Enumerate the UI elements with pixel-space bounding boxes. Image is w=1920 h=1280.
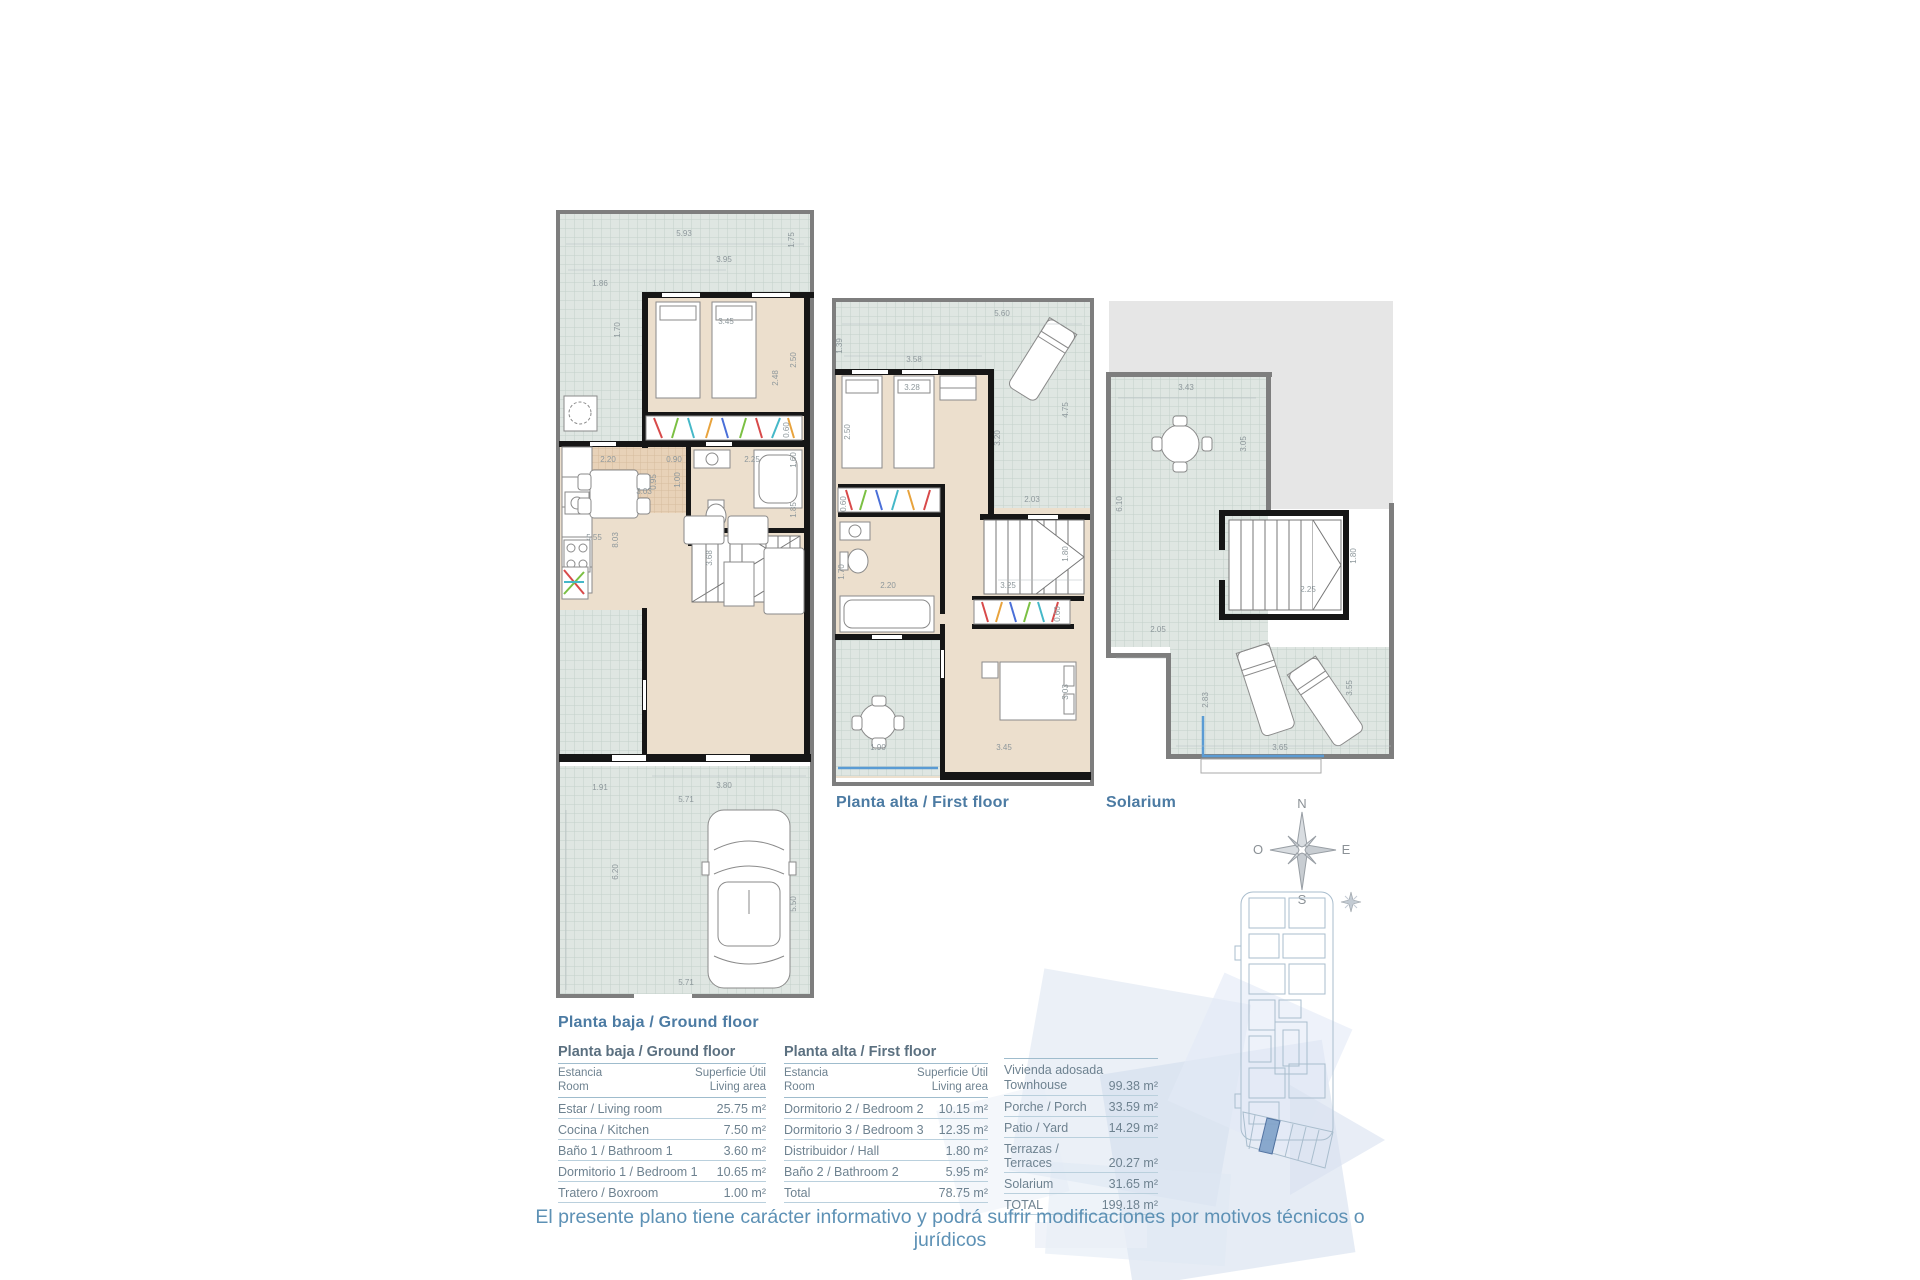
room-label: Distribuidor / Hall	[784, 1144, 879, 1158]
room-label: Terrazas / Terraces	[1004, 1142, 1109, 1170]
dim-label: 2.25	[1300, 585, 1316, 594]
area-value: 25.75 m²	[717, 1102, 766, 1116]
solarium-plan: 3.43 3.05 6.10 1.80 2.25 2.05 2.83 3.65 …	[1106, 298, 1396, 790]
dim-label: 3.58	[906, 355, 922, 364]
area-value: 99.38 m²	[1109, 1079, 1158, 1093]
first-floor-label: Planta alta / First floor	[836, 794, 1009, 812]
table-row: Cocina / Kitchen 7.50 m²	[558, 1119, 766, 1140]
room-label: Dormitorio 1 / Bedroom 1	[558, 1165, 698, 1179]
dim-label: 5.93	[676, 229, 692, 238]
dim-label: 1.80	[1061, 546, 1070, 562]
washer-icon	[564, 396, 597, 431]
room-label-line2: Townhouse	[1004, 1078, 1103, 1093]
compass-n: N	[1297, 796, 1306, 811]
table-row: Terrazas / Terraces 20.27 m²	[1004, 1138, 1158, 1173]
area-value: 1.00 m²	[724, 1186, 766, 1200]
table-totals: Vivienda adosada Townhouse 99.38 m² Porc…	[1004, 1058, 1158, 1215]
roof-area	[1268, 301, 1393, 509]
dim-label: 3.05	[1239, 436, 1248, 452]
area-value: 5.95 m²	[946, 1165, 988, 1179]
table-title: Planta baja / Ground floor	[558, 1044, 766, 1064]
table-row: Porche / Porch 33.59 m²	[1004, 1096, 1158, 1117]
table-row: Patio / Yard 14.29 m²	[1004, 1117, 1158, 1138]
dim-label: 3.45	[996, 743, 1012, 752]
table-row: Total 78.75 m²	[784, 1182, 988, 1203]
dim-label: 1.70	[613, 322, 622, 338]
table-header: Estancia Room Superficie Útil Living are…	[784, 1064, 988, 1098]
room-label: Porche / Porch	[1004, 1100, 1087, 1114]
room-label: Baño 2 / Bathroom 2	[784, 1165, 899, 1179]
room-label: Tratero / Boxroom	[558, 1186, 658, 1200]
room-label: Dormitorio 2 / Bedroom 2	[784, 1102, 924, 1116]
area-value: 78.75 m²	[939, 1186, 988, 1200]
dim-label: 2.25	[744, 455, 760, 464]
table-first-floor: Planta alta / First floor Estancia Room …	[784, 1044, 988, 1203]
dim-label: 2.50	[843, 424, 852, 440]
dim-label: 3.25	[1000, 581, 1016, 590]
dim-label: 1.85	[789, 502, 798, 518]
dim-label: 2.83	[1201, 692, 1210, 708]
area-value: 20.27 m²	[1109, 1156, 1158, 1170]
compass-o: O	[1253, 842, 1263, 857]
dim-label: 4.75	[1061, 402, 1070, 418]
table-row: Distribuidor / Hall 1.80 m²	[784, 1140, 988, 1161]
highlighted-unit	[1259, 1118, 1280, 1154]
ground-floor-label: Planta baja / Ground floor	[558, 1014, 759, 1032]
entrance-tiles	[559, 610, 646, 758]
header-area-line1: Superficie Útil	[695, 1067, 766, 1081]
dim-label: 3.28	[904, 383, 920, 392]
dim-label: 5.50	[789, 896, 798, 912]
dim-label: 3.80	[716, 781, 732, 790]
dim-label: 5.71	[678, 978, 694, 987]
dim-label: 1.39	[835, 338, 844, 354]
dim-label: 3.65	[1272, 743, 1288, 752]
header-room: Estancia Room	[784, 1067, 828, 1094]
area-value: 3.60 m²	[724, 1144, 766, 1158]
room-label: Baño 1 / Bathroom 1	[558, 1144, 673, 1158]
header-area-line1: Superficie Útil	[917, 1067, 988, 1081]
table-header: Estancia Room Superficie Útil Living are…	[558, 1064, 766, 1098]
header-room: Estancia Room	[558, 1067, 602, 1094]
dim-label: 1.91	[592, 783, 608, 792]
dim-label: 3.95	[716, 255, 732, 264]
dim-label: 5.71	[678, 795, 694, 804]
site-compass-icon	[1341, 892, 1361, 912]
dim-label: 3.20	[993, 430, 1002, 446]
room-label: Vivienda adosada Townhouse	[1004, 1063, 1103, 1093]
dim-label: 3.03	[1061, 684, 1070, 700]
table-title: Planta alta / First floor	[784, 1044, 988, 1064]
dim-label: 0.90	[666, 455, 682, 464]
header-room-line1: Estancia	[558, 1067, 602, 1081]
room-label: Solarium	[1004, 1177, 1053, 1191]
room-label: Estar / Living room	[558, 1102, 662, 1116]
table-row: Baño 2 / Bathroom 2 5.95 m²	[784, 1161, 988, 1182]
dim-label: 6.10	[1115, 496, 1124, 512]
header-area-line2: Living area	[917, 1081, 988, 1095]
header-room-line2: Room	[558, 1081, 602, 1095]
header-area: Superficie Útil Living area	[917, 1067, 988, 1094]
room-label: Total	[784, 1186, 810, 1200]
area-value: 10.15 m²	[939, 1102, 988, 1116]
table-row: Tratero / Boxroom 1.00 m²	[558, 1182, 766, 1203]
dim-label: 1.60	[789, 452, 798, 468]
dim-label: 3.68	[705, 550, 714, 566]
wardrobe-icon	[646, 416, 802, 440]
table-row: Estar / Living room 25.75 m²	[558, 1098, 766, 1119]
area-value: 10.65 m²	[717, 1165, 766, 1179]
area-value: 1.80 m²	[946, 1144, 988, 1158]
dim-label: 3.45	[718, 317, 734, 326]
header-area: Superficie Útil Living area	[695, 1067, 766, 1094]
dim-label: 1.75	[787, 232, 796, 248]
floorplan-sheet: 5.93 1.75 3.95 1.86 1.70 3.45 2.50 2.48 …	[0, 0, 1920, 1280]
table-row: Solarium 31.65 m²	[1004, 1173, 1158, 1194]
dim-label: 3.43	[1178, 383, 1194, 392]
site-plan	[1233, 886, 1373, 1186]
dim-label: 2.05	[1150, 625, 1166, 634]
dim-label: 8.03	[611, 532, 620, 548]
room-label-line1: Vivienda adosada	[1004, 1063, 1103, 1078]
ground-floor-plan: 5.93 1.75 3.95 1.86 1.70 3.45 2.50 2.48 …	[556, 210, 814, 1000]
table-row-townhouse: Vivienda adosada Townhouse 99.38 m²	[1004, 1059, 1158, 1096]
dim-label: 1.70	[837, 564, 846, 580]
header-room-line1: Estancia	[784, 1067, 828, 1081]
dim-label: 3.55	[1345, 680, 1354, 696]
table-row: Dormitorio 2 / Bedroom 2 10.15 m²	[784, 1098, 988, 1119]
dim-label: 5.55	[586, 533, 602, 542]
dim-label: 1.00	[673, 472, 682, 488]
table-row: Dormitorio 1 / Bedroom 1 10.65 m²	[558, 1161, 766, 1182]
boxroom-icon	[562, 567, 588, 599]
compass-e: E	[1342, 842, 1351, 857]
disclaimer-text: El presente plano tiene carácter informa…	[520, 1206, 1380, 1252]
wardrobe-icon	[838, 488, 940, 512]
stairs-icon	[1229, 520, 1341, 610]
dim-label: 6.20	[611, 864, 620, 880]
dim-label: 2.20	[600, 455, 616, 464]
dim-label: 3.03	[636, 487, 652, 496]
dim-label: 2.50	[789, 352, 798, 368]
header-room-line2: Room	[784, 1081, 828, 1095]
dim-label: 2.03	[1024, 495, 1040, 504]
area-value: 14.29 m²	[1109, 1121, 1158, 1135]
table-ground-floor: Planta baja / Ground floor Estancia Room…	[558, 1044, 766, 1203]
dim-label: 2.48	[771, 370, 780, 386]
room-label: Patio / Yard	[1004, 1121, 1068, 1135]
dim-label: 1.80	[1349, 548, 1358, 564]
room-label: Dormitorio 3 / Bedroom 3	[784, 1123, 924, 1137]
first-floor-plan: 5.60 1.39 3.58 3.28 2.50 4.75 3.20 2.03 …	[832, 298, 1094, 790]
area-value: 33.59 m²	[1109, 1100, 1158, 1114]
header-area-line2: Living area	[695, 1081, 766, 1095]
dim-label: 2.20	[880, 581, 896, 590]
table-row: Baño 1 / Bathroom 1 3.60 m²	[558, 1140, 766, 1161]
dim-label: 1.90	[870, 743, 886, 752]
area-value: 31.65 m²	[1109, 1177, 1158, 1191]
area-value: 7.50 m²	[724, 1123, 766, 1137]
area-value: 12.35 m²	[939, 1123, 988, 1137]
car-icon	[702, 810, 796, 988]
dim-label: 0.60	[1053, 606, 1062, 622]
room-label: Cocina / Kitchen	[558, 1123, 649, 1137]
dim-label: 0.60	[839, 496, 848, 512]
dim-label: 5.60	[994, 309, 1010, 318]
dim-label: 0.60	[782, 422, 791, 438]
dim-label: 1.86	[592, 279, 608, 288]
step	[1201, 759, 1321, 773]
table-row: Dormitorio 3 / Bedroom 3 12.35 m²	[784, 1119, 988, 1140]
solarium-label: Solarium	[1106, 794, 1176, 812]
